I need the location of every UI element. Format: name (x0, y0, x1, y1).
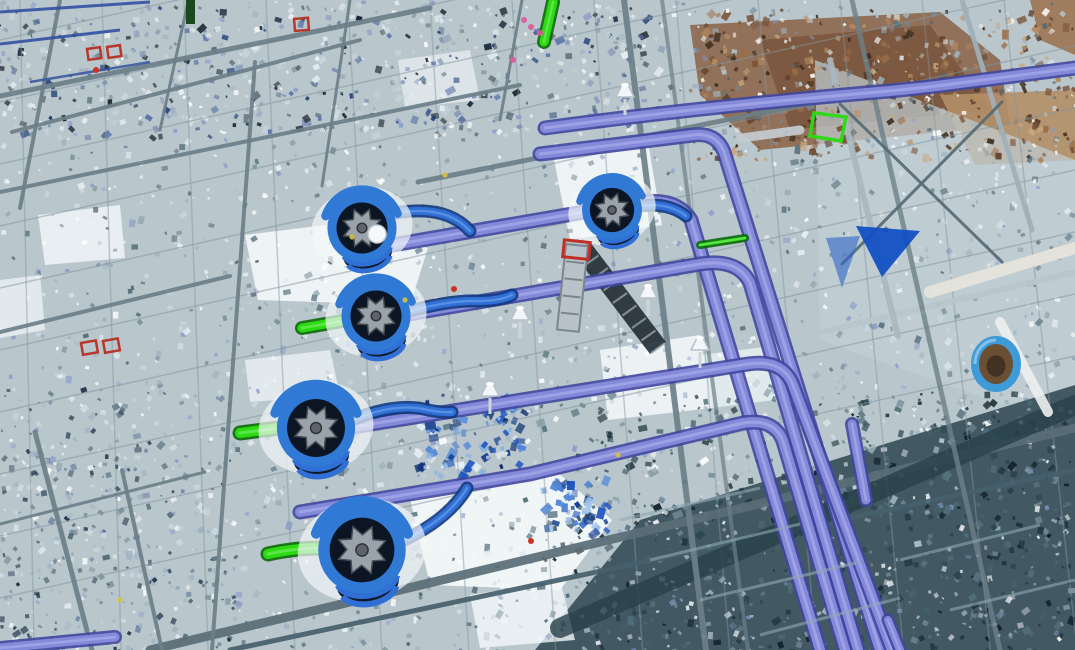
red-dot (528, 538, 534, 544)
magenta-dot (528, 24, 534, 30)
yellow-dot (442, 172, 447, 177)
yellow-dot (402, 297, 407, 302)
green-riser (544, 2, 553, 42)
magenta-dot (510, 57, 516, 63)
red-dot (451, 286, 457, 292)
yellow-dot (349, 234, 354, 239)
red-dot (93, 67, 99, 73)
scene-canvas (0, 0, 1075, 650)
dark-green-bar (186, 0, 195, 24)
pointcloud-3d-viewport[interactable] (0, 0, 1075, 650)
yellow-dot (615, 452, 620, 457)
magenta-dot (537, 30, 543, 36)
blue-wrapped-drum (975, 340, 1017, 388)
yellow-dot (117, 597, 122, 602)
magenta-dot (521, 17, 527, 23)
